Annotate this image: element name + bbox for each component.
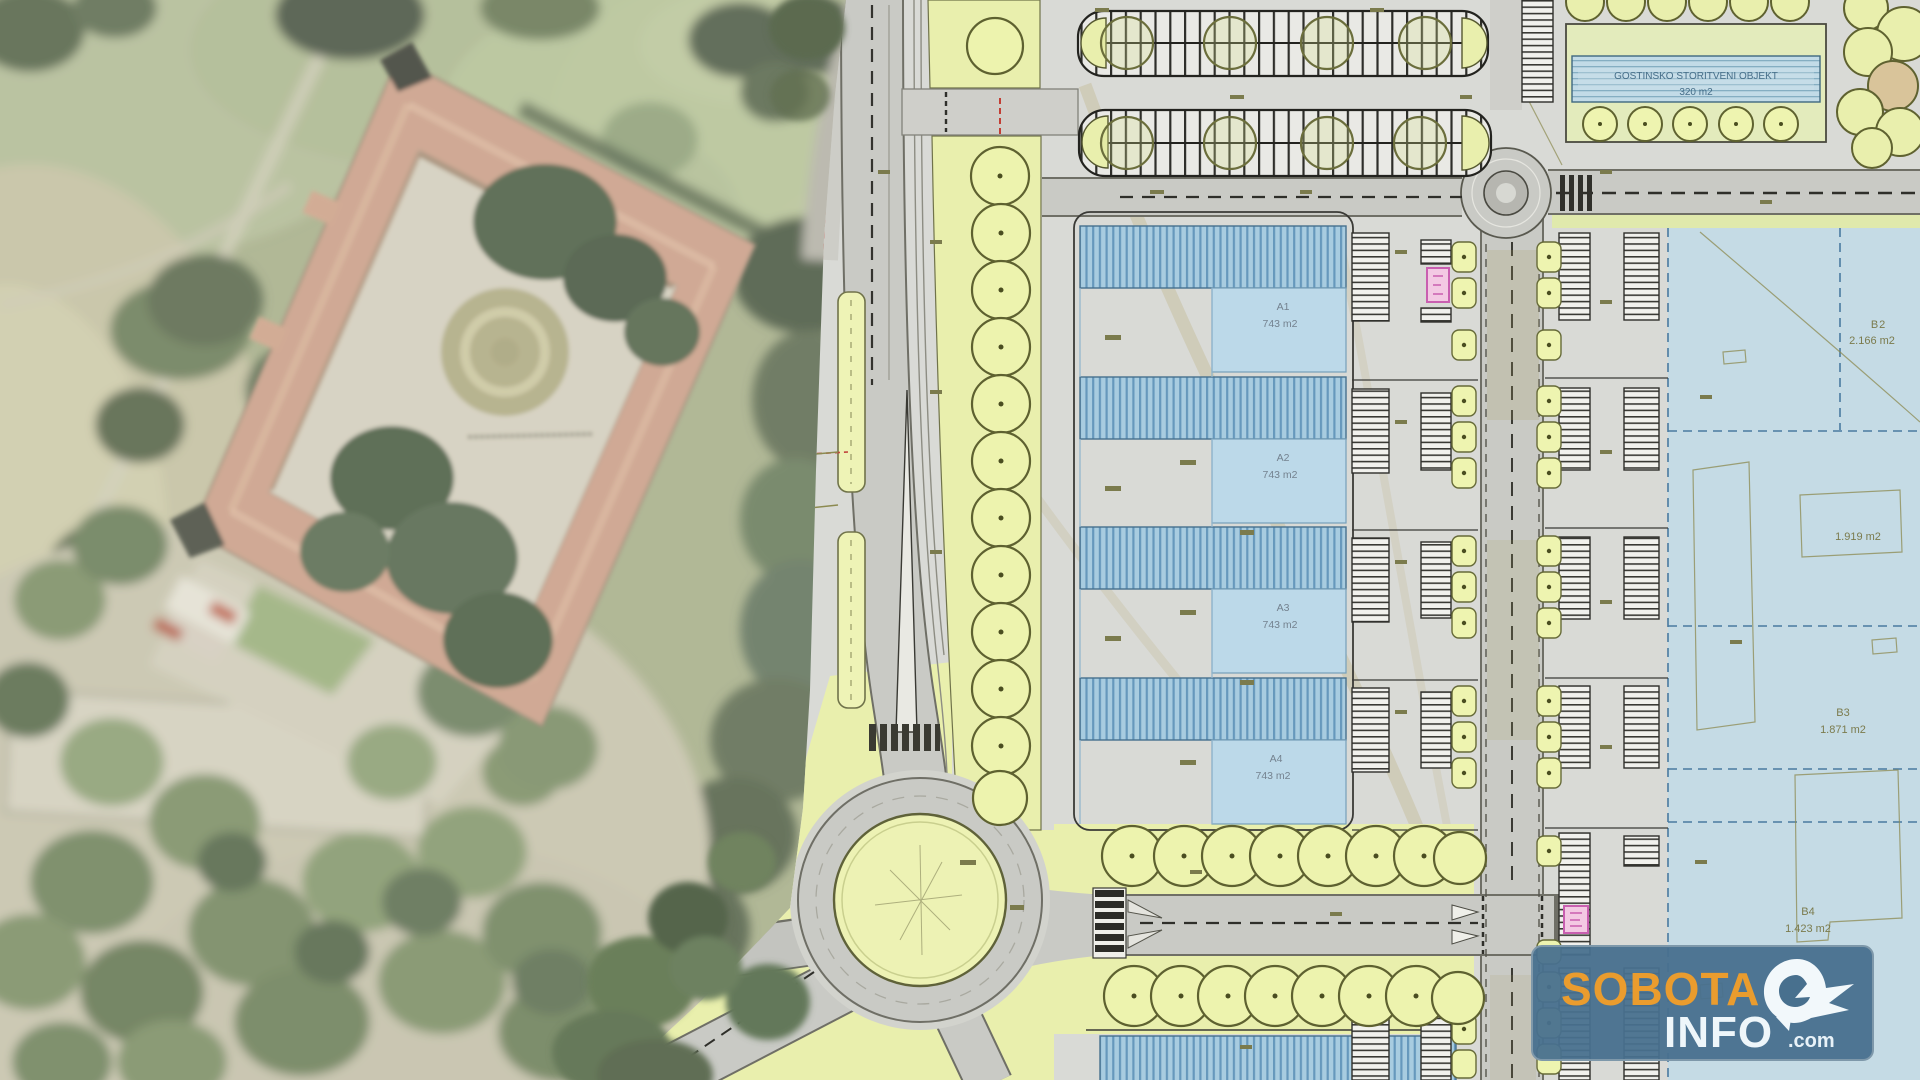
svg-text:.com: .com	[1788, 1030, 1835, 1052]
svg-text:1.423 m2: 1.423 m2	[1785, 923, 1831, 935]
svg-text:743 m2: 743 m2	[1262, 469, 1297, 481]
svg-text:743 m2: 743 m2	[1262, 619, 1297, 631]
svg-text:A3: A3	[1277, 602, 1290, 614]
svg-text:GOSTINSKO STORITVENI OBJEKT: GOSTINSKO STORITVENI OBJEKT	[1614, 71, 1778, 82]
svg-text:INFO: INFO	[1664, 1008, 1773, 1057]
svg-text:A4: A4	[1270, 753, 1283, 765]
svg-text:A2: A2	[1277, 452, 1290, 464]
svg-text:1.871 m2: 1.871 m2	[1820, 724, 1866, 736]
svg-text:2.166 m2: 2.166 m2	[1849, 335, 1895, 347]
svg-text:743 m2: 743 m2	[1255, 770, 1290, 782]
svg-text:B 2: B 2	[1871, 319, 1885, 331]
svg-text:1.919 m2: 1.919 m2	[1835, 531, 1881, 543]
svg-text:320 m2: 320 m2	[1679, 87, 1713, 98]
svg-text:B4: B4	[1801, 906, 1814, 918]
svg-text:743 m2: 743 m2	[1262, 318, 1297, 330]
svg-text:A1: A1	[1277, 301, 1290, 313]
svg-text:B3: B3	[1836, 707, 1849, 719]
